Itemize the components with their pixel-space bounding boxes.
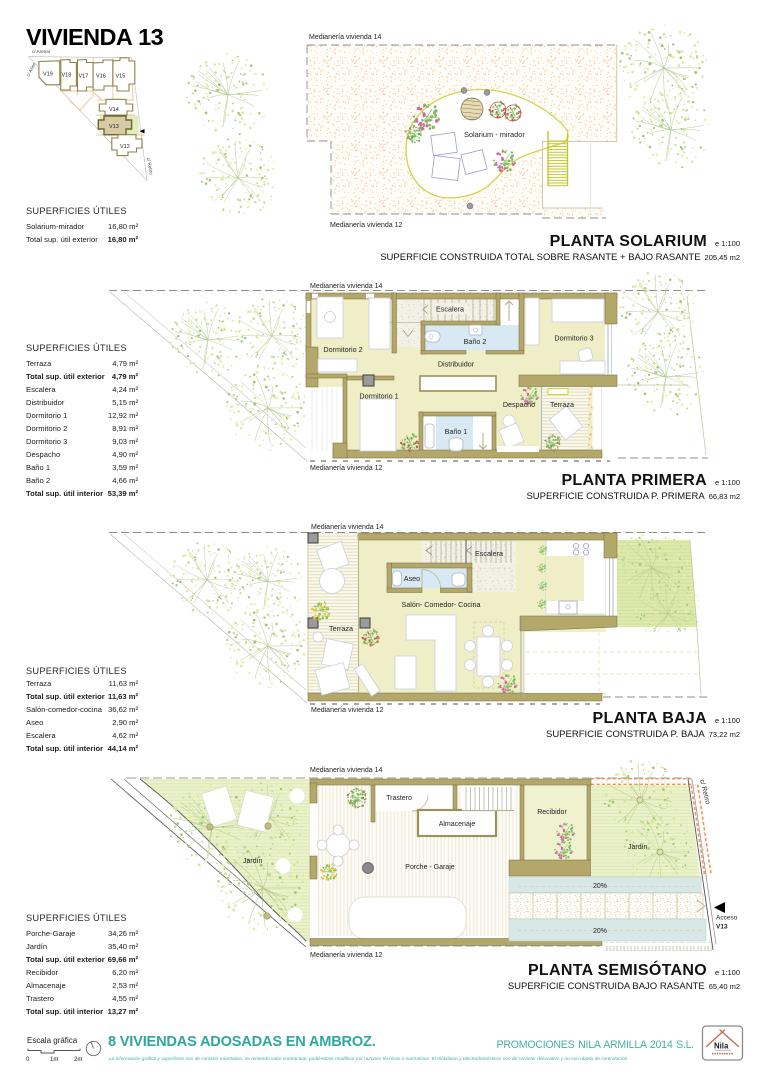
svg-text:Acceso: Acceso (716, 915, 738, 922)
svg-text:Medianería vivienda 14: Medianería vivienda 14 (311, 524, 383, 531)
svg-text:Medianería vivienda 12: Medianería vivienda 12 (330, 222, 402, 229)
svg-text:Solarium - mirador: Solarium - mirador (464, 130, 525, 139)
svg-text:Escalera: Escalera (475, 549, 503, 558)
svg-text:Medianería vivienda 12: Medianería vivienda 12 (311, 707, 383, 714)
svg-text:V15: V15 (116, 74, 126, 80)
svg-text:c/ Arenal: c/ Arenal (32, 49, 50, 54)
svg-text:V18: V18 (62, 73, 72, 79)
svg-text:Trastero: Trastero (386, 795, 412, 802)
svg-text:V12: V12 (120, 144, 130, 150)
svg-text:Recibidor: Recibidor (537, 809, 567, 816)
svg-text:Jardín: Jardín (628, 844, 648, 851)
svg-text:Aseo: Aseo (404, 574, 420, 583)
svg-text:Medianería vivienda 14: Medianería vivienda 14 (309, 34, 381, 41)
svg-text:20%: 20% (593, 883, 607, 890)
svg-text:V13: V13 (716, 924, 728, 931)
svg-text:20%: 20% (593, 928, 607, 935)
svg-text:Terraza: Terraza (329, 624, 353, 633)
svg-text:V14: V14 (109, 107, 119, 113)
svg-text:2m: 2m (74, 1057, 82, 1063)
svg-text:V17: V17 (79, 74, 89, 80)
svg-text:Nila: Nila (714, 1042, 729, 1051)
svg-text:Medianería vivienda 14: Medianería vivienda 14 (310, 283, 382, 290)
svg-text:Baño 2: Baño 2 (464, 337, 487, 346)
svg-text:Terraza: Terraza (550, 400, 574, 409)
svg-text:Salón- Comedor- Cocina: Salón- Comedor- Cocina (401, 600, 480, 609)
svg-text:Medianería vivienda 12: Medianería vivienda 12 (310, 952, 382, 959)
svg-text:Almacenaje: Almacenaje (439, 821, 476, 828)
svg-text:V16: V16 (96, 74, 106, 80)
svg-text:Baño 1: Baño 1 (445, 427, 468, 436)
svg-text:V19: V19 (43, 72, 53, 78)
svg-text:1m: 1m (50, 1057, 58, 1063)
svg-text:Escalera: Escalera (436, 305, 464, 314)
svg-text:Dormitorio 1: Dormitorio 1 (359, 392, 398, 401)
svg-text:Medianería vivienda 14: Medianería vivienda 14 (310, 767, 382, 774)
svg-text:Distribuidor: Distribuidor (438, 360, 475, 369)
svg-text:c/ Retiro: c/ Retiro (146, 157, 154, 175)
svg-text:Despacho: Despacho (503, 400, 535, 409)
svg-text:Dormitorio 2: Dormitorio 2 (323, 345, 362, 354)
svg-text:0: 0 (26, 1057, 30, 1063)
svg-text:V13: V13 (109, 124, 119, 130)
svg-text:Porche - Garaje: Porche - Garaje (405, 864, 455, 871)
svg-text:Medianería vivienda 12: Medianería vivienda 12 (310, 465, 382, 472)
svg-text:Dormitorio 3: Dormitorio 3 (554, 334, 593, 343)
svg-text:Jardín: Jardín (243, 858, 263, 865)
